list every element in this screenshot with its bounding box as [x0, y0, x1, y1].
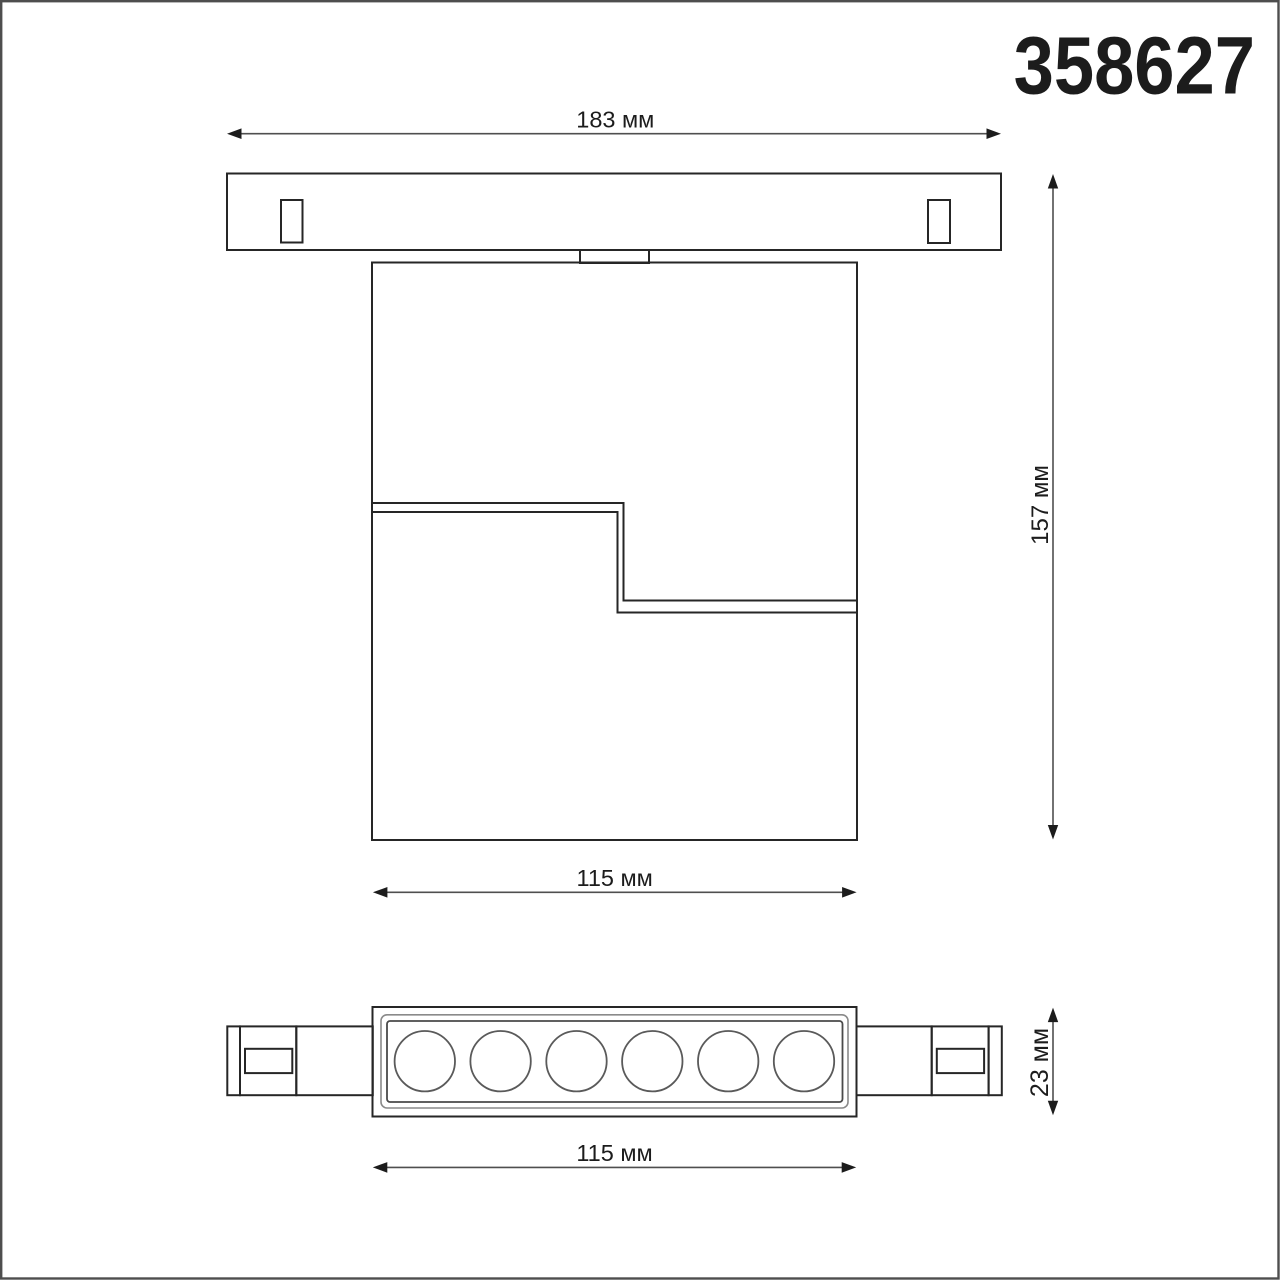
- svg-text:358627: 358627: [1014, 21, 1255, 112]
- svg-text:115 мм: 115 мм: [576, 1140, 652, 1166]
- svg-text:23 мм: 23 мм: [1026, 1028, 1054, 1097]
- svg-text:115 мм: 115 мм: [577, 865, 653, 891]
- svg-text:183 мм: 183 мм: [576, 107, 654, 133]
- svg-text:157 мм: 157 мм: [1027, 465, 1054, 545]
